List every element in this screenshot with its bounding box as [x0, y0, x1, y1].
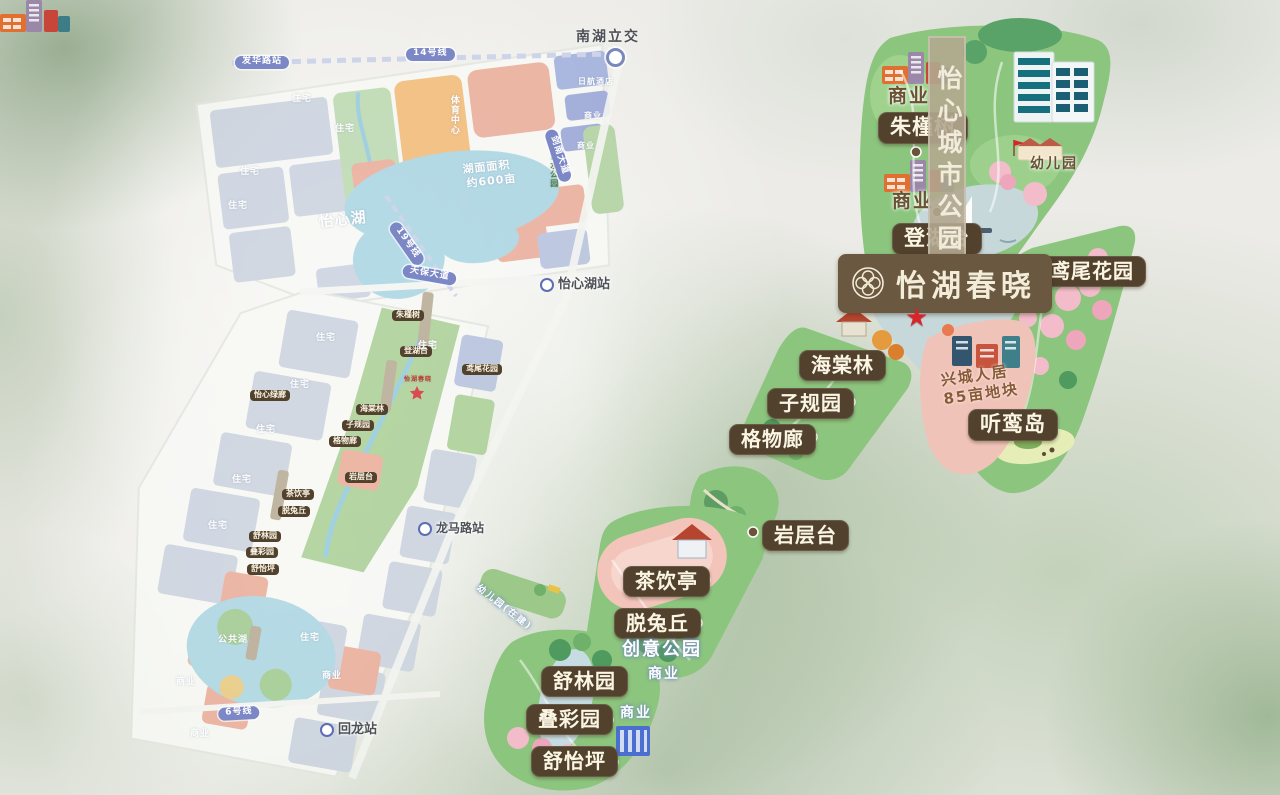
main-title-badge: 怡湖春晓: [838, 254, 1052, 313]
metro-icon: [540, 278, 554, 292]
labels-layer: 朱槿树登湖台鸢尾花园海棠林子规园格物廊听鸾岛岩层台茶饮亭脱兔丘舒林园叠彩园舒怡坪…: [0, 0, 1280, 795]
label-youeryuan: 幼儿园: [1030, 157, 1078, 172]
mini-badge-yixinlvlang: 怡心绿廊: [250, 390, 290, 401]
station-huilongzhan: 回龙站: [320, 723, 377, 737]
label-zhuzhai-8: 住宅: [232, 476, 252, 486]
mini-badge-tuotuqiu: 脱兔丘: [278, 506, 310, 517]
mini-badge-shulinyuan: 舒林园: [249, 531, 281, 542]
badge-ziguiyuan: 子规园: [767, 388, 854, 419]
label-shangye-bottom: 商业: [620, 706, 652, 721]
station-yixinhuzhan: 怡心湖站: [540, 278, 610, 292]
metro-icon: [418, 522, 432, 536]
label-shangye-d: 商业: [190, 730, 210, 740]
pill-fahualuzhan: 发华路站: [235, 56, 289, 69]
label-zhuzhai-2: 住宅: [335, 125, 355, 135]
star-marker-icon: ★: [905, 303, 928, 333]
label-zhuzhai-11: 住宅: [300, 634, 320, 644]
label-zhuzhai-10: 住宅: [418, 342, 438, 352]
mini-badge-shuyiping: 舒怡坪: [247, 564, 279, 575]
park-ribbon: 怡心城市公园: [928, 36, 966, 276]
label-gonggonghu: 公共湖: [218, 636, 248, 646]
interchange-text: 南湖立交: [576, 29, 640, 45]
label-shangye-b: 商业: [577, 142, 595, 151]
interchange-roundabout-icon: [606, 48, 625, 67]
mini-badge-ziguiyuan: 子规园: [342, 420, 374, 431]
mini-badge-yanweihuayuan: 鸢尾花园: [462, 364, 502, 375]
mini-badge-gewulang: 格物廊: [329, 436, 361, 447]
badge-yanweihuayuan: 鸢尾花园: [1038, 256, 1146, 287]
label-tiyuzhongxin: 体育中心: [448, 95, 458, 135]
label-zhuzhai-3: 住宅: [240, 168, 260, 178]
label-shangye-mid: 商业: [648, 667, 680, 682]
label-yixinhu: 怡心湖: [318, 209, 367, 230]
mini-badge-diecaiyuan: 叠彩园: [246, 547, 278, 558]
interchange-label: 南湖立交: [576, 26, 640, 46]
label-chuangyigongyuan: 创意公园: [622, 640, 702, 660]
badge-diecaiyuan: 叠彩园: [526, 704, 613, 735]
label-yihuchunxiao-mini: 怡湖春晓: [404, 377, 432, 384]
label-youeryuan-zaijian: 幼儿园(在建): [474, 584, 533, 633]
pill-tianbaodadao: 天保大道: [402, 264, 457, 286]
label-rihangjiudian: 日航酒店: [578, 78, 614, 87]
badge-haitanglin: 海棠林: [799, 350, 886, 381]
label-zhuzhai-1: 住宅: [292, 95, 312, 105]
label-shangye-a: 商业: [584, 112, 602, 121]
pill-line19: 19号线: [387, 220, 425, 267]
badge-gewulang: 格物廊: [729, 424, 816, 455]
label-shangye-e: 商业: [322, 672, 342, 682]
label-zhuzhai-4: 住宅: [228, 202, 248, 212]
badge-tingluandao: 听鸾岛: [968, 409, 1058, 441]
label-lake-area-2: 约600亩: [466, 173, 517, 190]
flower-logo-icon: [850, 265, 886, 301]
mini-badge-zhujinshu: 朱槿树: [392, 310, 424, 321]
mini-badge-chayinting: 茶饮亭: [282, 489, 314, 500]
badge-tuotuqiu: 脱兔丘: [614, 608, 701, 639]
map-poster: 朱槿树登湖台鸢尾花园海棠林子规园格物廊听鸾岛岩层台茶饮亭脱兔丘舒林园叠彩园舒怡坪…: [0, 0, 1280, 795]
station-longmaluzhan: 龙马路站: [418, 522, 484, 536]
badge-chayinting: 茶饮亭: [623, 566, 710, 597]
label-shangye-c: 商业: [176, 678, 196, 688]
mini-badge-yancengtai: 岩层台: [345, 472, 377, 483]
label-zhuzhai-6: 住宅: [290, 381, 310, 391]
badge-yancengtai: 岩层台: [762, 520, 849, 551]
label-zhuzhai-5: 住宅: [316, 334, 336, 344]
label-shangye-top1: 商业: [888, 86, 930, 107]
badge-shuyiping: 舒怡坪: [531, 746, 618, 777]
badge-shulinyuan: 舒林园: [541, 666, 628, 697]
pill-line6: 6号线: [218, 706, 260, 721]
label-shangye-top2: 商业: [892, 191, 934, 212]
label-zhuzhai-7: 住宅: [256, 426, 276, 436]
main-title-text: 怡湖春晓: [896, 261, 1036, 305]
label-zhuzhai-9: 住宅: [208, 522, 228, 532]
metro-icon: [320, 723, 334, 737]
pill-line14: 14号线: [406, 48, 455, 61]
mini-badge-haitanglin: 海棠林: [356, 404, 388, 415]
